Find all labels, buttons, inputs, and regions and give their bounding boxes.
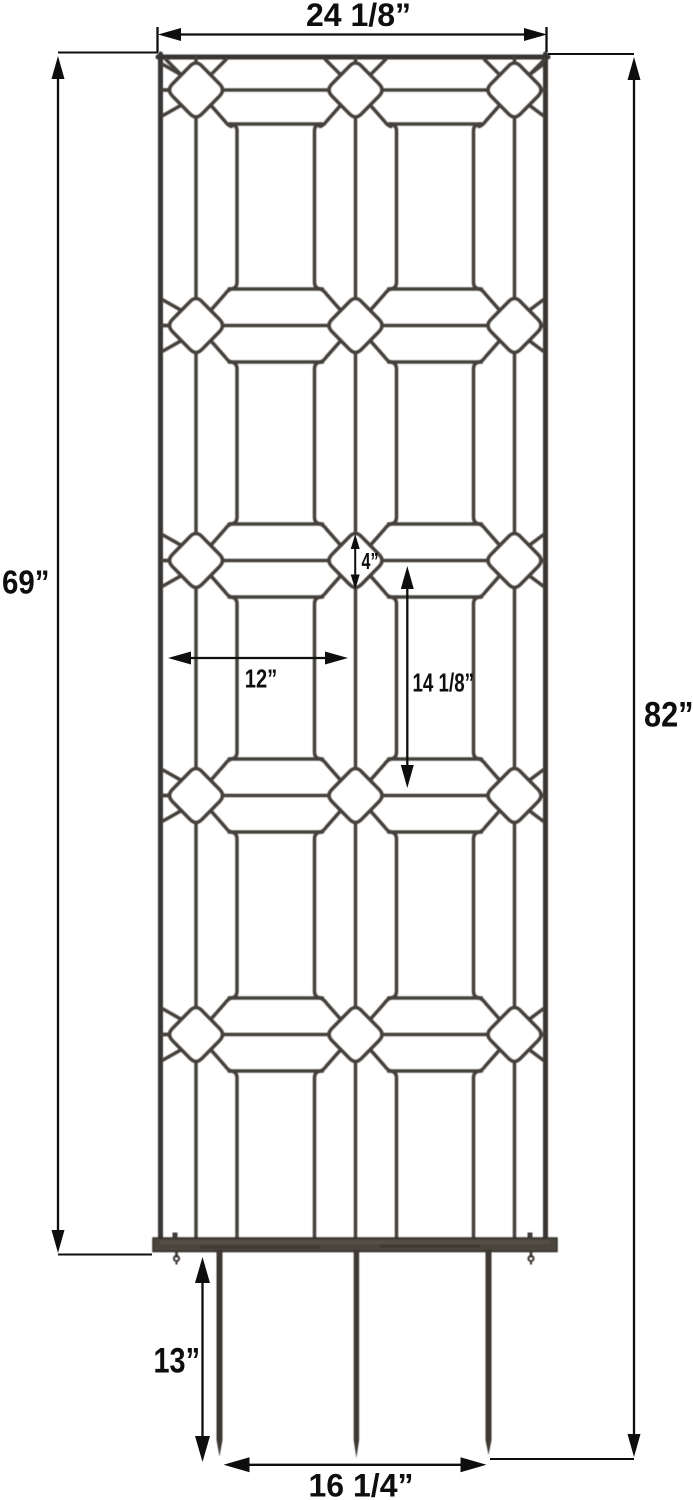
- svg-text:4”: 4”: [362, 548, 379, 574]
- svg-text:82”: 82”: [644, 695, 693, 735]
- svg-text:14 1/8”: 14 1/8”: [413, 667, 475, 697]
- svg-text:13”: 13”: [154, 1341, 201, 1381]
- svg-text:69”: 69”: [2, 564, 50, 601]
- svg-text:24 1/8”: 24 1/8”: [306, 0, 411, 33]
- svg-text:16 1/4”: 16 1/4”: [309, 1467, 414, 1500]
- svg-text:12”: 12”: [245, 664, 278, 694]
